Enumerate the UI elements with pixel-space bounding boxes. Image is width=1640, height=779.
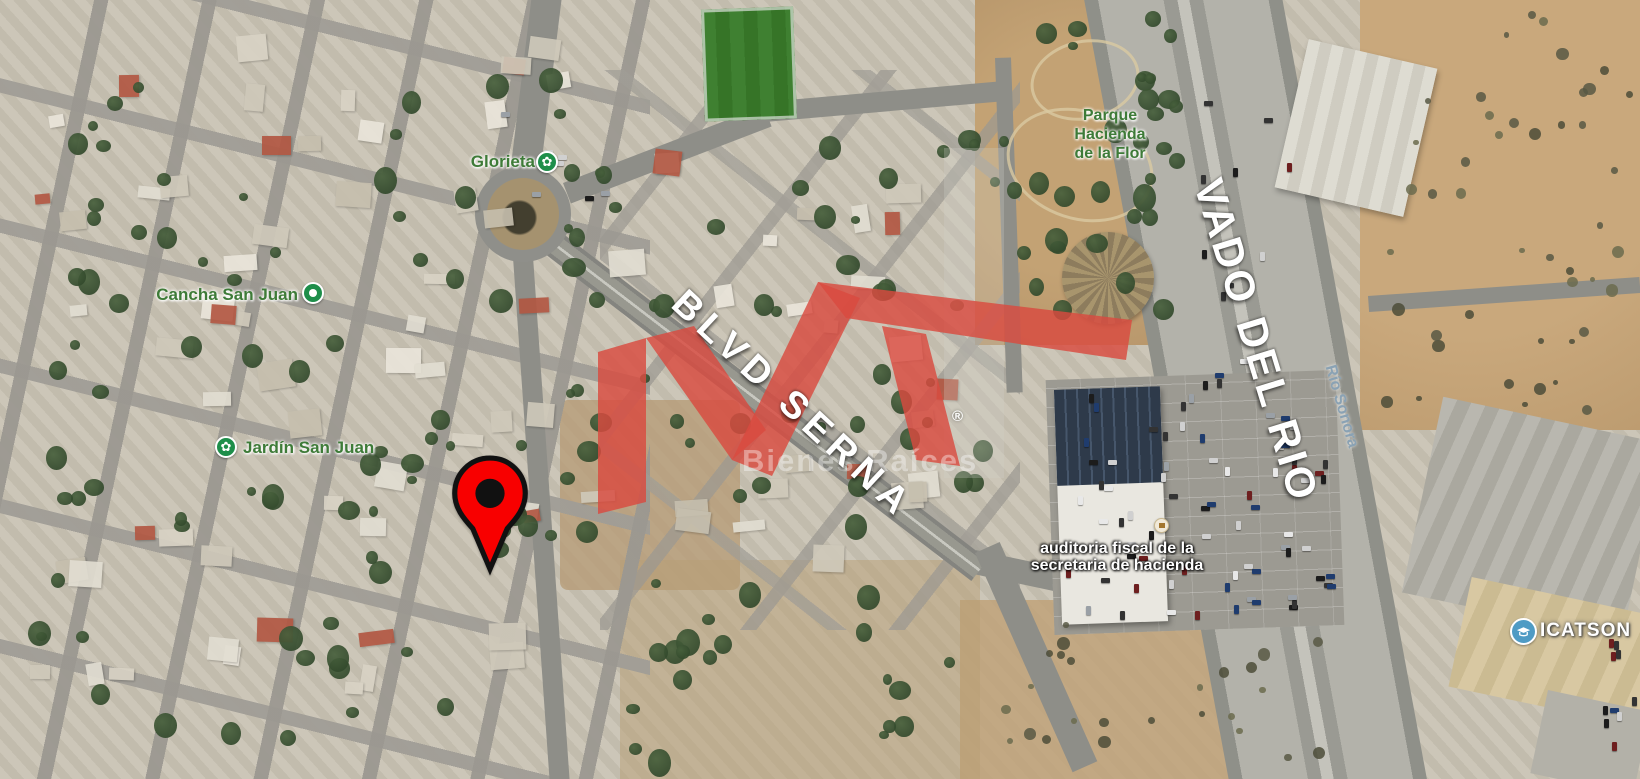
decor-tree bbox=[1164, 29, 1177, 43]
decor-tree bbox=[279, 626, 303, 651]
decor-tree bbox=[91, 684, 110, 705]
decor-shrub bbox=[1007, 738, 1014, 745]
decor-tree bbox=[131, 225, 147, 240]
decor-tree bbox=[133, 82, 144, 93]
decor-shrub bbox=[1600, 66, 1609, 75]
decor-tree bbox=[280, 730, 296, 746]
decor-car bbox=[1632, 697, 1637, 706]
decor-shrub bbox=[1590, 277, 1595, 282]
decor-shrub bbox=[1042, 735, 1051, 744]
decor-shrub bbox=[1381, 396, 1392, 407]
decor-car bbox=[1234, 605, 1239, 614]
decor-roof bbox=[244, 83, 265, 111]
decor-shrub bbox=[1024, 728, 1036, 740]
decor-shrub bbox=[1569, 339, 1575, 345]
decor-tree bbox=[894, 716, 913, 736]
decor-tree bbox=[57, 492, 73, 505]
decor-car bbox=[1252, 600, 1261, 605]
decor-roof bbox=[35, 193, 51, 204]
decor-shrub bbox=[1579, 327, 1590, 338]
decor-tree bbox=[425, 432, 438, 445]
decor-shrub bbox=[1406, 184, 1417, 195]
decor-roof bbox=[252, 224, 290, 249]
decor-car bbox=[1604, 719, 1609, 728]
decor-roof bbox=[491, 411, 514, 433]
decor-tree bbox=[390, 129, 402, 139]
decor-shrub bbox=[1556, 48, 1568, 60]
decor-shrub bbox=[1197, 684, 1204, 691]
decor-roof bbox=[340, 90, 355, 111]
decor-tree bbox=[242, 344, 263, 368]
decor-shrub bbox=[1567, 277, 1578, 288]
decor-roof bbox=[203, 392, 231, 407]
decor-car bbox=[1611, 652, 1616, 661]
decor-tree bbox=[239, 193, 248, 201]
decor-tree bbox=[407, 476, 416, 484]
decor-tree bbox=[84, 479, 104, 496]
decor-car bbox=[1284, 532, 1293, 537]
decor-roof bbox=[30, 664, 50, 678]
decor-tree bbox=[289, 360, 310, 383]
registered-trademark-symbol: ® bbox=[952, 408, 963, 425]
decor-car bbox=[1252, 569, 1261, 574]
decor-car bbox=[1233, 571, 1238, 580]
decor-tree bbox=[402, 91, 422, 114]
decor-tree bbox=[489, 289, 513, 313]
decor-car bbox=[1251, 505, 1260, 510]
decor-roof bbox=[135, 526, 155, 541]
decor-tree bbox=[516, 440, 527, 451]
decor-shrub bbox=[1529, 128, 1541, 140]
decor-shrub bbox=[1219, 667, 1230, 678]
decor-car bbox=[1207, 502, 1216, 507]
decor-tree bbox=[1145, 73, 1156, 83]
sports-poi-icon[interactable] bbox=[302, 282, 324, 304]
decor-roof bbox=[813, 545, 845, 573]
decor-shrub bbox=[1606, 284, 1618, 296]
business-poi-icon[interactable] bbox=[1154, 518, 1169, 533]
decor-car bbox=[1326, 574, 1335, 579]
decor-tree bbox=[175, 512, 187, 526]
decor-shrub bbox=[1558, 121, 1566, 129]
decor-tree bbox=[109, 294, 128, 313]
decor-tree bbox=[431, 410, 449, 430]
decor-shrub bbox=[1001, 705, 1011, 715]
decor-car bbox=[1612, 742, 1617, 751]
decor-car bbox=[1603, 706, 1608, 715]
decor-tree bbox=[262, 484, 284, 510]
decor-tree bbox=[327, 645, 350, 672]
decor-car bbox=[1616, 650, 1621, 659]
decor-shrub bbox=[1432, 340, 1445, 353]
decor-tree bbox=[393, 211, 406, 222]
decor-roof bbox=[483, 208, 514, 229]
decor-roof bbox=[526, 402, 555, 428]
label-cancha-san-juan[interactable]: Cancha San Juan bbox=[148, 285, 298, 305]
decor-car bbox=[1614, 641, 1619, 650]
decor-tree bbox=[648, 749, 671, 777]
decor-shrub bbox=[1046, 650, 1053, 657]
decor-shrub bbox=[1539, 17, 1548, 26]
label-line: auditoria fiscal de la bbox=[1028, 540, 1206, 557]
decor-car bbox=[1209, 458, 1218, 463]
decor-shrub bbox=[1509, 118, 1519, 128]
decor-tree bbox=[676, 645, 690, 659]
decor-tree bbox=[889, 681, 911, 700]
pin-center-dot bbox=[475, 479, 504, 508]
decor-tree bbox=[76, 631, 89, 643]
decor-car bbox=[1202, 534, 1211, 539]
decor-tree bbox=[68, 268, 86, 286]
decor-shrub bbox=[1199, 711, 1205, 717]
decor-roof bbox=[336, 181, 372, 208]
label-line: Parque bbox=[1055, 106, 1165, 125]
garden-flower-icon[interactable]: ✿ bbox=[215, 436, 237, 458]
decor-car bbox=[1086, 606, 1091, 615]
decor-car bbox=[1120, 611, 1125, 620]
decor-tree bbox=[883, 720, 895, 733]
decor-tree bbox=[221, 722, 241, 746]
decor-shrub bbox=[1067, 657, 1075, 665]
decor-roof bbox=[201, 546, 233, 567]
decor-roof bbox=[415, 361, 446, 378]
decor-roof bbox=[406, 315, 426, 333]
decor-roof bbox=[68, 560, 102, 588]
decor-shrub bbox=[1259, 687, 1265, 693]
decor-tree bbox=[198, 257, 208, 267]
decor-tree bbox=[346, 707, 360, 718]
satellite-map[interactable]: ® Bienes Raíces BLVD SERNA VADO DEL RIO … bbox=[0, 0, 1640, 779]
decor-shrub bbox=[1538, 338, 1544, 344]
decor-tree bbox=[703, 650, 717, 664]
decor-tree bbox=[1036, 23, 1057, 44]
decor-shrub bbox=[1063, 622, 1069, 628]
decor-tree bbox=[49, 361, 67, 380]
decor-roof bbox=[452, 433, 484, 448]
decor-shrub bbox=[1313, 637, 1323, 647]
decor-roof bbox=[109, 667, 135, 680]
graduation-cap-icon bbox=[1516, 626, 1531, 637]
decor-roof bbox=[298, 136, 321, 152]
decor-shrub bbox=[1495, 131, 1504, 140]
decor-tree bbox=[323, 617, 339, 631]
location-pin-icon[interactable] bbox=[447, 452, 533, 576]
decor-shrub bbox=[1057, 651, 1065, 659]
decor-tree bbox=[1068, 42, 1078, 50]
decor-shrub bbox=[1566, 267, 1574, 275]
decor-tree bbox=[373, 446, 389, 459]
decor-roof bbox=[235, 34, 267, 63]
decor-shrub bbox=[1504, 32, 1509, 37]
decor-car bbox=[1233, 168, 1238, 177]
decor-car bbox=[1302, 546, 1311, 551]
label-parque-hacienda[interactable]: Parque Hacienda de la Flor bbox=[1055, 106, 1165, 163]
decor-car bbox=[1225, 583, 1230, 592]
decor-car bbox=[532, 192, 541, 197]
decor-shrub bbox=[1582, 405, 1592, 415]
pin-body bbox=[455, 458, 526, 569]
decor-shrub bbox=[1428, 189, 1438, 199]
decor-tree bbox=[92, 385, 109, 398]
decor-roof bbox=[223, 254, 257, 272]
decor-car bbox=[1225, 467, 1230, 476]
decor-car bbox=[1244, 564, 1253, 569]
decor-car bbox=[1149, 531, 1154, 540]
decor-car bbox=[1316, 576, 1325, 581]
decor-tree bbox=[87, 211, 101, 226]
decor-shrub bbox=[1246, 662, 1257, 673]
decor-shrub bbox=[1597, 222, 1603, 228]
decor-car bbox=[1167, 610, 1176, 615]
decor-tree bbox=[326, 335, 344, 352]
decor-tree bbox=[366, 551, 377, 564]
decor-tree bbox=[51, 573, 65, 589]
decor-tree bbox=[486, 74, 509, 99]
decor-tree bbox=[455, 186, 476, 209]
decor-shrub bbox=[1416, 396, 1422, 402]
decor-shrub bbox=[1626, 91, 1633, 98]
decor-roof bbox=[344, 681, 362, 694]
park-flower-icon[interactable]: ✿ bbox=[536, 151, 558, 173]
decor-roof bbox=[48, 114, 65, 128]
label-line: de la Flor bbox=[1055, 144, 1165, 163]
decor-tree bbox=[651, 579, 661, 588]
decor-roof bbox=[86, 662, 106, 687]
decor-shrub bbox=[1583, 83, 1595, 95]
decor-shrub bbox=[1611, 167, 1618, 174]
decor-tree bbox=[1145, 11, 1161, 27]
decor-tree bbox=[545, 530, 556, 541]
decor-roof bbox=[262, 136, 291, 155]
decor-tree bbox=[181, 336, 202, 358]
label-jardin-san-juan[interactable]: Jardín San Juan bbox=[243, 438, 374, 458]
decor-tree bbox=[28, 621, 51, 646]
decor-shrub bbox=[1485, 111, 1494, 120]
label-glorieta[interactable]: Glorieta bbox=[440, 152, 535, 172]
decor-car bbox=[1260, 252, 1265, 261]
decor-roof bbox=[500, 56, 530, 75]
decor-shrub bbox=[1071, 718, 1077, 724]
decor-shrub bbox=[1528, 11, 1536, 19]
decor-shrub bbox=[1098, 736, 1111, 749]
decor-roof bbox=[489, 622, 527, 650]
decor-car bbox=[1288, 595, 1297, 600]
school-poi-icon[interactable] bbox=[1510, 618, 1537, 645]
label-line: secretaria de hacienda bbox=[1028, 557, 1206, 574]
decor-tree bbox=[71, 491, 86, 506]
decor-car bbox=[1287, 163, 1292, 172]
decor-tree bbox=[270, 247, 281, 258]
decor-shrub bbox=[1579, 121, 1587, 129]
decor-tree bbox=[157, 227, 177, 249]
decor-tree bbox=[88, 198, 104, 212]
decor-tree bbox=[626, 704, 639, 715]
decor-tree bbox=[374, 167, 397, 195]
decor-shrub bbox=[1258, 648, 1271, 661]
decor-roof bbox=[360, 518, 386, 537]
label-auditoria-fiscal[interactable]: auditoria fiscal de la secretaria de hac… bbox=[1028, 540, 1206, 574]
decor-roof bbox=[207, 636, 239, 662]
decor-car bbox=[1247, 491, 1252, 500]
decor-shrub bbox=[1425, 98, 1431, 104]
label-icatson[interactable]: ICATSON bbox=[1540, 620, 1631, 642]
decor-shrub bbox=[1028, 684, 1034, 690]
label-line: Hacienda bbox=[1055, 125, 1165, 144]
decor-tree bbox=[338, 501, 360, 521]
decor-tree bbox=[1169, 100, 1184, 113]
decor-shrub bbox=[1465, 310, 1474, 319]
decor-tree bbox=[46, 446, 67, 470]
decor-tree bbox=[401, 454, 424, 473]
decor-tree bbox=[296, 650, 315, 666]
decor-shrub bbox=[1504, 379, 1514, 389]
decor-shrub bbox=[1612, 246, 1624, 258]
decor-tree bbox=[857, 585, 879, 610]
decor-car bbox=[1617, 712, 1622, 721]
decor-shrub bbox=[1236, 728, 1242, 734]
decor-shrub bbox=[1476, 92, 1486, 102]
decor-car bbox=[1264, 118, 1273, 123]
decor-roof bbox=[358, 628, 394, 646]
decor-shrub bbox=[1546, 254, 1554, 262]
decor-shrub bbox=[1313, 747, 1325, 759]
decor-shrub bbox=[1392, 303, 1405, 316]
decor-tree bbox=[539, 68, 562, 93]
decor-tree bbox=[446, 269, 464, 289]
decor-tree bbox=[702, 614, 715, 626]
decor-shrub bbox=[1284, 754, 1292, 762]
decor-tree bbox=[96, 140, 111, 152]
decor-car bbox=[1286, 548, 1291, 557]
decor-shrub bbox=[1553, 380, 1558, 385]
decor-car bbox=[1195, 611, 1200, 620]
decor-shrub bbox=[1387, 249, 1394, 256]
decor-tree bbox=[944, 657, 955, 668]
decor-roof bbox=[235, 310, 252, 326]
decor-tree bbox=[446, 441, 456, 451]
decor-tree bbox=[70, 340, 80, 349]
decor-shrub bbox=[1413, 140, 1418, 145]
decor-roof bbox=[70, 304, 88, 317]
decor-tree bbox=[649, 643, 668, 662]
decor-tree bbox=[107, 96, 123, 111]
decor-roof bbox=[518, 297, 549, 313]
decor-car bbox=[1169, 580, 1174, 589]
decor-tree bbox=[413, 253, 429, 267]
decor-tree bbox=[883, 674, 892, 684]
decor-tree bbox=[247, 487, 257, 496]
decor-tree bbox=[369, 561, 391, 584]
decor-car bbox=[501, 112, 510, 117]
decor-car bbox=[1215, 373, 1224, 378]
decor-tree bbox=[714, 635, 732, 654]
decor-car bbox=[1323, 460, 1328, 469]
decor-tree bbox=[673, 670, 693, 690]
decor-shrub bbox=[1228, 713, 1235, 720]
decor-tree bbox=[437, 698, 455, 716]
decor-tree bbox=[554, 109, 566, 119]
decor-car bbox=[1201, 506, 1210, 511]
decor-shrub bbox=[1522, 402, 1528, 408]
decor-car bbox=[1134, 584, 1139, 593]
decor-car bbox=[1200, 434, 1205, 443]
decor-roof bbox=[210, 304, 236, 325]
decor-shrub bbox=[1519, 248, 1524, 253]
decor-shrub bbox=[1456, 188, 1467, 199]
decor-tree bbox=[68, 133, 88, 154]
decor-car bbox=[1236, 521, 1241, 530]
decor-tree bbox=[157, 173, 171, 186]
decor-tree bbox=[154, 713, 177, 738]
decor-tree bbox=[856, 623, 872, 642]
decor-shrub bbox=[1099, 718, 1109, 728]
decor-car bbox=[1203, 381, 1208, 390]
decor-shrub bbox=[1148, 717, 1155, 724]
decor-tree bbox=[739, 582, 760, 607]
decor-shrub bbox=[1057, 637, 1070, 650]
decor-roof bbox=[159, 529, 194, 547]
decor-car bbox=[1204, 101, 1213, 106]
decor-roof bbox=[60, 210, 88, 232]
decor-tree bbox=[629, 743, 643, 755]
decor-tree bbox=[401, 647, 413, 658]
decor-tree bbox=[88, 121, 98, 131]
decor-car bbox=[1217, 379, 1222, 388]
decor-shrub bbox=[1461, 157, 1471, 167]
decor-tree bbox=[369, 506, 378, 517]
decor-roof bbox=[527, 36, 561, 61]
decor-car bbox=[1101, 578, 1110, 583]
decor-shrub bbox=[1534, 383, 1546, 395]
decor-roof bbox=[357, 119, 384, 143]
decor-car bbox=[1327, 584, 1336, 589]
decor-car bbox=[1292, 600, 1297, 609]
decor-tree bbox=[1068, 21, 1087, 37]
decor-roof bbox=[287, 409, 321, 439]
